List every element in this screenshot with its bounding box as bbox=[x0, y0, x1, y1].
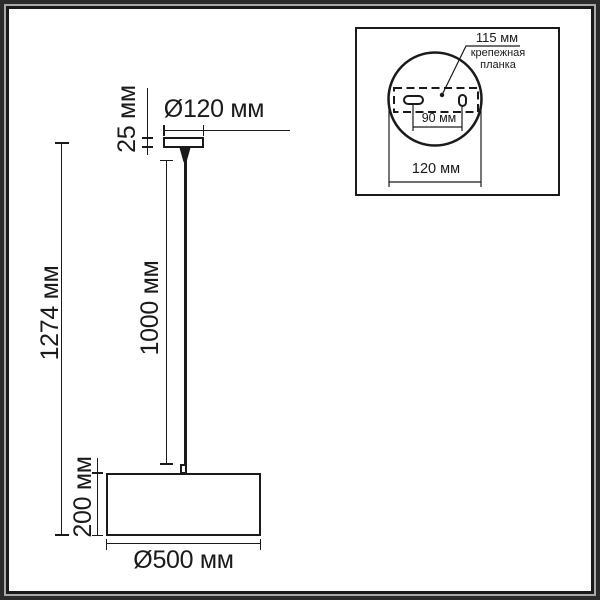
bracket-hole-right bbox=[459, 95, 466, 106]
bracket-name-line2: планка bbox=[458, 60, 538, 72]
dim-shade-diameter-label: Ø500 мм bbox=[106, 547, 261, 573]
dim-cord-length-tick-top bbox=[160, 160, 173, 162]
drawing-canvas: Ø120 мм 25 мм 1274 мм 1000 мм 200 мм Ø50… bbox=[0, 0, 600, 600]
dim-shade-diameter-line bbox=[106, 543, 261, 544]
dim-cord-length-line bbox=[166, 160, 167, 464]
bracket-slot-left bbox=[404, 96, 423, 104]
dim-shade-height-label: 200 мм bbox=[70, 456, 96, 537]
dim-canopy-diameter-line bbox=[164, 130, 290, 131]
pendant-drawing: Ø120 мм 25 мм 1274 мм 1000 мм 200 мм Ø50… bbox=[0, 0, 600, 600]
dim-canopy-height-line bbox=[147, 88, 148, 155]
dim-canopy-height-label: 25 мм bbox=[114, 85, 140, 153]
suspension-cord bbox=[184, 158, 188, 466]
dim-total-height-label: 1274 мм bbox=[37, 266, 63, 361]
dim-cord-length-tick-bottom bbox=[160, 463, 173, 465]
dim-canopy-height-tick-top bbox=[142, 137, 153, 139]
dim-canopy-diameter-tick-left bbox=[163, 125, 165, 136]
dim-total-height-tick-bottom bbox=[55, 534, 69, 536]
dim-inset-diameter-label: 120 мм bbox=[400, 162, 472, 178]
dim-total-height-tick-top bbox=[55, 142, 69, 144]
bracket-name-label: крепежная планка bbox=[458, 48, 538, 72]
lamp-shade bbox=[106, 473, 261, 536]
dim-cord-length-label: 1000 мм bbox=[137, 261, 163, 356]
dim-bracket-length-label: 115 мм bbox=[462, 31, 532, 45]
dim-canopy-height-tick-bottom bbox=[142, 146, 153, 148]
dim-canopy-diameter-tick-right bbox=[203, 125, 205, 136]
dim-hole-spacing-label: 90 мм bbox=[412, 112, 466, 126]
dim-canopy-diameter-label: Ø120 мм bbox=[160, 96, 268, 122]
